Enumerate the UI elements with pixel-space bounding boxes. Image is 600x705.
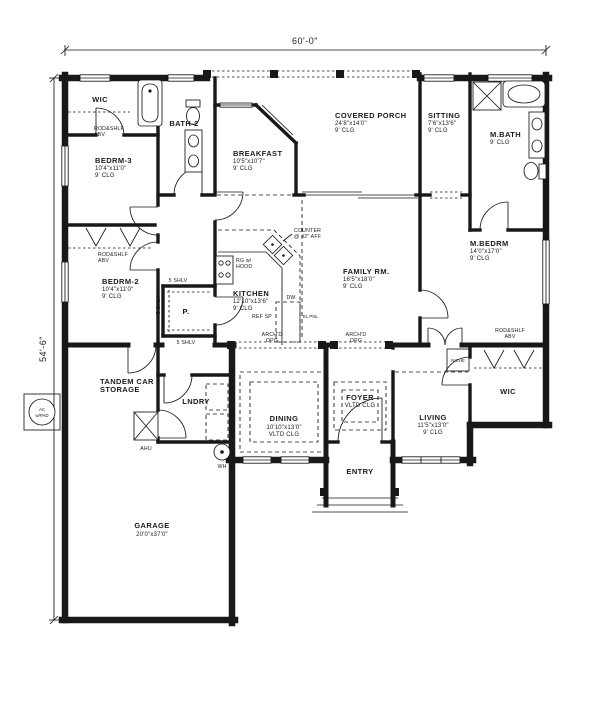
- door-mbath: [480, 202, 508, 230]
- label-porch-size: 24'8"x14'0": [335, 121, 367, 127]
- label-foyer-clg: VLTD CLG: [345, 403, 376, 409]
- label-shelves-top: 5 SHLV: [169, 278, 188, 284]
- label-ref: REF SP: [252, 314, 272, 320]
- porch-post: [203, 70, 211, 78]
- column: [227, 341, 235, 349]
- label-dining-clg: VLTD CLG: [269, 432, 300, 438]
- entry-post: [320, 488, 328, 496]
- label-sitting-name: SITTING: [428, 111, 460, 120]
- exterior-walls: [62, 75, 549, 623]
- label-rodshelf-2b: ABV: [98, 258, 109, 264]
- door-breakfast: [215, 192, 243, 220]
- column: [318, 341, 326, 349]
- label-ahu: AHU: [140, 446, 152, 452]
- label-kitchen-name: KITCHEN: [233, 289, 269, 298]
- label-tandem-2: STORAGE: [100, 385, 140, 394]
- label-bedrm3-size: 10'4"x11'0": [95, 166, 126, 172]
- label-entry: ENTRY: [346, 467, 373, 476]
- porch-post: [412, 70, 420, 78]
- label-foyer-name: FOYER: [346, 393, 374, 402]
- label-mbath-name: M.BATH: [490, 130, 521, 139]
- label-dining-name: DINING: [270, 414, 299, 423]
- label-arch2b: OPG: [350, 338, 362, 344]
- utility-fixtures: [24, 384, 230, 460]
- label-porch-clg: 9' CLG: [335, 128, 355, 134]
- label-sitting-clg: 9' CLG: [428, 128, 448, 134]
- label-dw: DW: [286, 295, 295, 301]
- label-living-size: 11'5"x13'0": [417, 423, 448, 429]
- door-master-closet-double: [428, 328, 462, 345]
- label-laundry: LNDRY: [182, 397, 210, 406]
- label-ac1: AC: [39, 407, 45, 412]
- label-family-name: FAMILY RM.: [343, 267, 390, 276]
- label-wic2: WIC: [500, 387, 516, 396]
- label-bedrm3-clg: 9' CLG: [95, 173, 115, 179]
- toilet: [186, 100, 200, 107]
- porch-post: [336, 70, 344, 78]
- label-shelves-left: 5 SHLV: [156, 295, 162, 314]
- label-mbedrm-name: M.BEDRM: [470, 239, 509, 248]
- door-laundry-side: [158, 410, 186, 438]
- label-mbedrm-clg: 9' CLG: [470, 256, 490, 262]
- label-mbedrm-size: 14'0"x17'0": [470, 249, 502, 255]
- label-breakfast-clg: 9' CLG: [233, 166, 253, 172]
- label-bedrm2-clg: 9' CLG: [102, 294, 122, 300]
- floor-plan-drawing: 60'-0" 54'-6": [0, 0, 600, 705]
- label-garage-name: GARAGE: [134, 521, 169, 530]
- label-pantry: P.: [183, 307, 190, 316]
- label-bath2: BATH-2: [169, 119, 198, 128]
- porch-post: [270, 70, 278, 78]
- dryer-space: [206, 414, 228, 440]
- label-porch-name: COVERED PORCH: [335, 111, 406, 120]
- label-ac2: w/PAD: [35, 413, 48, 418]
- label-sitting-size: 7'6"x13'6": [428, 121, 456, 127]
- label-bedrm2-name: BEDRM-2: [102, 277, 139, 286]
- label-bedrm2-size: 10'4"x11'0": [102, 287, 133, 293]
- label-rodshelf-3b: ABV: [505, 334, 516, 340]
- label-arch1b: OPG: [266, 338, 278, 344]
- door-master: [420, 290, 448, 318]
- label-shelves-bottom: 5 SHLV: [177, 340, 196, 346]
- label-bedrm3-name: BEDRM-3: [95, 156, 132, 165]
- dimension-left-label: 54'-6": [38, 336, 48, 362]
- windows: [62, 75, 549, 463]
- label-wh: WH: [217, 464, 226, 470]
- label-kitchen-size: 12'10"x13'6": [233, 299, 268, 305]
- label-dining-size: 10'10"x13'0": [266, 425, 301, 431]
- vanity: [185, 130, 202, 172]
- ac-unit: [29, 399, 55, 425]
- label-garage-size: 20'0"x37'0": [136, 532, 168, 538]
- label-family-clg: 9' CLG: [343, 284, 363, 290]
- door-tandem: [128, 345, 156, 373]
- label-breakfast-name: BREAKFAST: [233, 149, 282, 158]
- label-living-clg: 9' CLG: [423, 430, 443, 436]
- vanity: [529, 112, 545, 158]
- label-mbath-clg: 9' CLG: [490, 140, 510, 146]
- label-el-pnl: EL PNL: [303, 314, 319, 319]
- room-labels: WIC ROD&SHLF ABV BEDRM-3 10'4"x11'0" 9' …: [35, 95, 524, 538]
- label-family-size: 16'5"x18'0": [343, 277, 375, 283]
- label-rodshelf-1b: ABV: [94, 132, 105, 138]
- door-bedrm3: [130, 207, 158, 235]
- column: [330, 341, 338, 349]
- door-bedrm2: [130, 242, 158, 270]
- range: [216, 256, 233, 284]
- kitchen-counters: [216, 230, 300, 345]
- label-living-name: LIVING: [419, 413, 446, 422]
- dimension-top-label: 60'-0": [292, 36, 318, 46]
- floor-plan-page: 60'-0" 54'-6": [0, 0, 600, 705]
- label-kitchen-clg: 9' CLG: [233, 306, 253, 312]
- toilet: [539, 164, 546, 179]
- entry-post: [391, 488, 399, 496]
- label-range2: HOOD: [236, 264, 252, 270]
- column: [385, 341, 393, 349]
- label-counter2: @ 42" AFF: [294, 234, 321, 240]
- label-wic1: WIC: [92, 95, 108, 104]
- label-niche: NICHE: [451, 358, 465, 363]
- label-breakfast-size: 10'5"x10'7": [233, 159, 265, 165]
